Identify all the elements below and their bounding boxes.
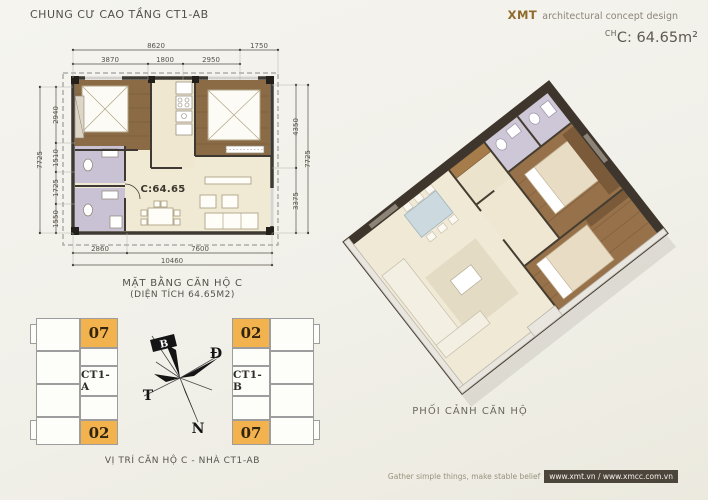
bldg-b-cell <box>270 318 314 351</box>
dim-bottom-total: 10460 <box>161 257 183 265</box>
bldg-b-cell <box>232 348 270 366</box>
bldg-b-cell <box>232 396 270 420</box>
bldg-a-cell <box>36 384 80 417</box>
dim-top-seg3: 2950 <box>202 56 220 64</box>
unit-area-sup: CH <box>605 29 617 38</box>
unit-area-label: CHC: 64.65m² <box>605 29 698 46</box>
dim-bottom-seg2: 7600 <box>191 245 209 253</box>
dim-bottom-seg1: 2860 <box>91 245 109 253</box>
dim-right-seg2: 3375 <box>292 186 300 216</box>
dim-top-seg1: 3870 <box>101 56 119 64</box>
bldg-a-notch <box>30 324 37 344</box>
dim-top-seg2: 1800 <box>156 56 174 64</box>
dim-right-total: 7725 <box>304 144 312 174</box>
bldg-a-label: CT1-A <box>80 366 118 396</box>
plan-caption-line2: (DIỆN TÍCH 64.65M2) <box>30 290 335 300</box>
bldg-a-cell <box>36 417 80 445</box>
unit-area-plan-label: C:64.65 <box>140 184 185 195</box>
dim-left-seg4: 1550 <box>52 204 60 234</box>
floor-plan-drawing <box>30 38 335 310</box>
dim-left-total: 7725 <box>36 145 44 175</box>
dim-top-right: 1750 <box>250 42 268 50</box>
unit-07-left: 07 <box>80 318 118 348</box>
apartment-3d-drawing <box>330 50 708 430</box>
brochure-page: CHUNG CƯ CAO TẦNG CT1-AB XMTarchitectura… <box>0 0 708 500</box>
page-title: CHUNG CƯ CAO TẦNG CT1-AB <box>30 8 209 21</box>
bldg-b-cell <box>270 384 314 417</box>
locator-caption: VỊ TRÍ CĂN HỘ C - NHÀ CT1-AB <box>30 456 335 466</box>
unit-02-right: 02 <box>232 318 270 348</box>
bldg-a-cell <box>36 318 80 351</box>
bldg-a-cell <box>80 348 118 366</box>
floor-plan-2d: 8620 1750 3870 1800 2950 7725 2940 1510 … <box>30 38 335 310</box>
footer-slogan: Gather simple things, make stable belief <box>388 472 540 481</box>
bldg-a-cell <box>80 396 118 420</box>
footer: Gather simple things, make stable belief… <box>388 472 678 481</box>
brand-tagline: architectural concept design <box>542 11 678 22</box>
unit-07-right: 07 <box>232 420 270 445</box>
bldg-a-cell <box>36 351 80 384</box>
compass-west-label: T <box>143 388 154 404</box>
dim-top-total: 8620 <box>147 42 165 50</box>
perspective-caption: PHỐI CẢNH CĂN HỘ <box>330 406 610 417</box>
dim-left-seg2: 1510 <box>52 143 60 173</box>
bldg-b-notch <box>313 324 320 344</box>
footer-websites: www.xmt.vn / www.xmcc.com.vn <box>544 470 678 483</box>
dim-right-seg1: 4350 <box>292 112 300 142</box>
unit-locator-diagram: 07 CT1-A 02 02 CT1-B 07 <box>30 312 335 470</box>
compass-south-label: N <box>192 421 205 435</box>
bldg-b-notch <box>313 420 320 440</box>
brand-logo: XMTarchitectural concept design <box>508 8 678 22</box>
bldg-b-cell <box>270 351 314 384</box>
brand-name: XMT <box>508 8 538 22</box>
bldg-b-cell <box>270 417 314 445</box>
apartment-3d-view: PHỐI CẢNH CĂN HỘ <box>330 50 708 430</box>
compass-east-label: Đ <box>210 346 222 362</box>
bldg-a-notch <box>30 420 37 440</box>
bldg-b-label: CT1-B <box>232 366 270 396</box>
compass-rose: B Đ T N <box>140 330 225 435</box>
unit-area-value: C: 64.65m² <box>617 30 698 46</box>
plan-caption-line1: MẶT BẰNG CĂN HỘ C <box>30 278 335 289</box>
dim-left-seg3: 1725 <box>52 173 60 203</box>
unit-02-left: 02 <box>80 420 118 445</box>
dim-left-seg1: 2940 <box>52 100 60 130</box>
